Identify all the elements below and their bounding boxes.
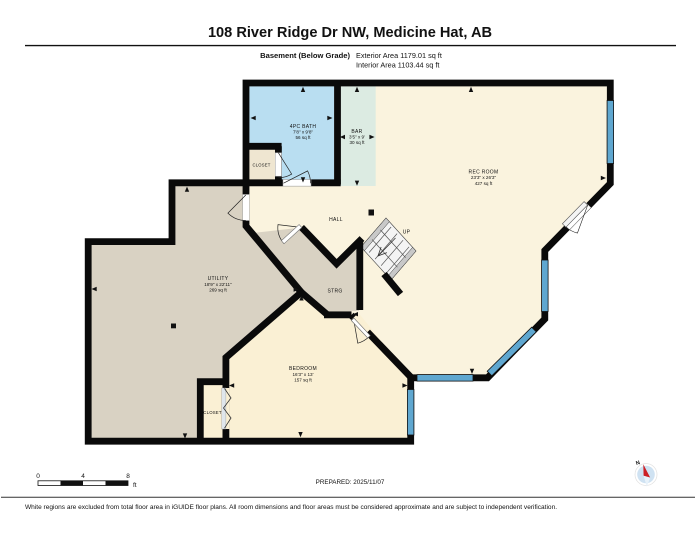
svg-text:0: 0: [36, 473, 40, 480]
svg-text:7'8" x 9'8": 7'8" x 9'8": [293, 130, 313, 135]
svg-text:56 sq ft: 56 sq ft: [295, 135, 311, 140]
svg-text:Interior Area 1103.44 sq ft: Interior Area 1103.44 sq ft: [356, 61, 439, 70]
svg-text:N: N: [635, 460, 641, 467]
svg-text:STRG: STRG: [327, 288, 342, 294]
svg-text:CLOSET: CLOSET: [253, 162, 271, 167]
svg-text:157 sq ft: 157 sq ft: [294, 378, 312, 383]
svg-text:427 sq ft: 427 sq ft: [475, 181, 493, 186]
svg-text:3'5" x 9': 3'5" x 9': [349, 135, 365, 140]
svg-text:ft: ft: [133, 482, 137, 489]
svg-text:HALL: HALL: [329, 217, 343, 223]
svg-text:18'9" x 22'11": 18'9" x 22'11": [204, 282, 232, 287]
svg-text:108 River Ridge Dr NW, Medicin: 108 River Ridge Dr NW, Medicine Hat, AB: [208, 25, 492, 41]
svg-text:8: 8: [126, 473, 130, 480]
svg-text:16'3" x 13': 16'3" x 13': [292, 372, 313, 377]
svg-text:White regions are excluded fro: White regions are excluded from total fl…: [25, 504, 557, 511]
svg-text:PREPARED: 2025/11/07: PREPARED: 2025/11/07: [316, 479, 385, 486]
svg-text:23'3" x 26'3": 23'3" x 26'3": [471, 175, 497, 180]
svg-text:Exterior Area 1179.01 sq ft: Exterior Area 1179.01 sq ft: [356, 51, 442, 60]
svg-text:30 sq ft: 30 sq ft: [349, 140, 365, 145]
svg-text:269 sq ft: 269 sq ft: [209, 288, 227, 293]
svg-text:4: 4: [81, 473, 85, 480]
svg-text:CLOSET: CLOSET: [203, 410, 222, 415]
svg-text:Basement (Below Grade): Basement (Below Grade): [260, 51, 350, 60]
svg-text:UP: UP: [403, 230, 411, 236]
